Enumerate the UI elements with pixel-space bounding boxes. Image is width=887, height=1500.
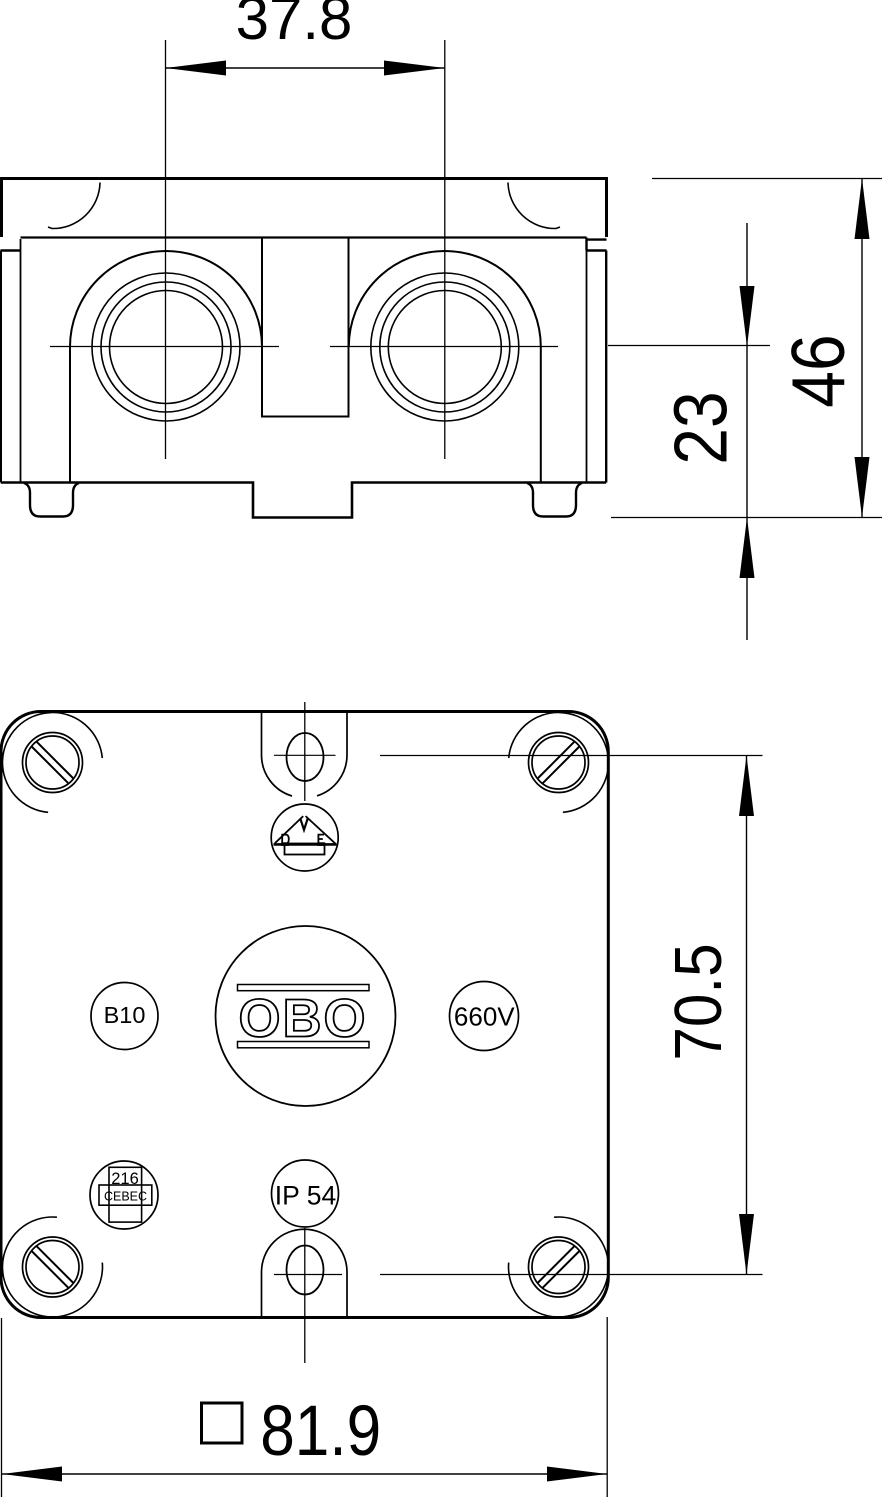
svg-text:CEBEC: CEBEC [104, 1190, 147, 1204]
svg-text:81.9: 81.9 [260, 1392, 381, 1471]
svg-text:IP 54: IP 54 [275, 1181, 336, 1211]
svg-text:46: 46 [776, 334, 860, 407]
svg-text:660V: 660V [454, 1002, 515, 1032]
svg-text:37.8: 37.8 [236, 0, 353, 52]
svg-text:B10: B10 [104, 1002, 146, 1028]
svg-text:70.5: 70.5 [660, 943, 736, 1060]
svg-text:216: 216 [111, 1170, 139, 1188]
svg-text:OBO: OBO [238, 989, 367, 1049]
svg-text:23: 23 [658, 391, 742, 464]
